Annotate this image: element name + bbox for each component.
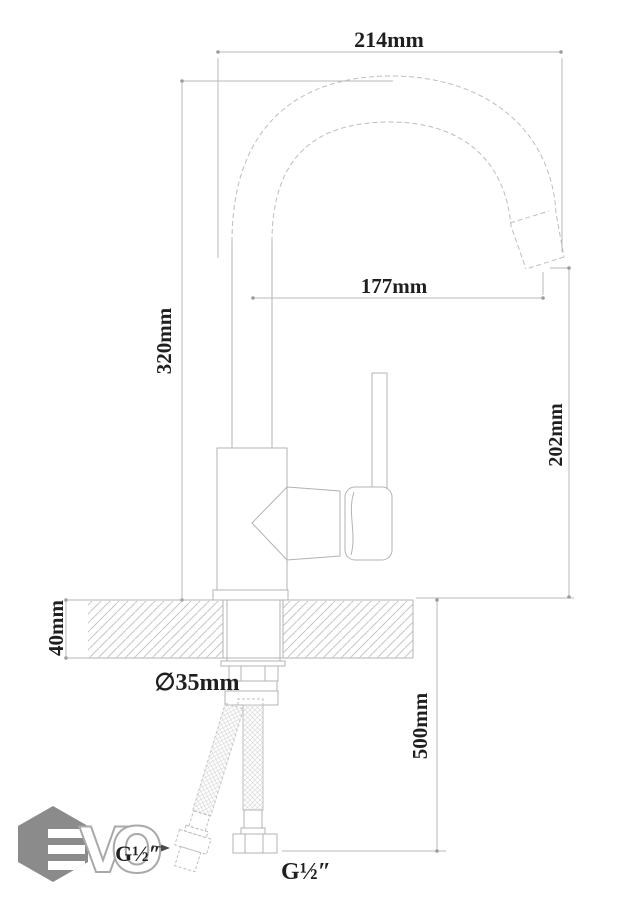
dimension-labels: 214mm 177mm 320mm 202mm 40mm 500mm ∅35mm… [44,27,567,885]
supply-hose-angled [169,701,250,873]
label-outlet-height: 202mm [545,403,567,467]
countertop-hatch-left [88,601,223,658]
label-counter-thickness: 40mm [44,600,68,656]
hose-male-hex [175,829,211,854]
threaded-shank [227,600,280,661]
logo-letter-e-hexagon [18,806,88,882]
label-hole-diameter: ∅35mm [155,670,240,696]
spout-aerator-joint [510,211,549,223]
drawing-svg: V O 214mm 177mm 320mm 202mm 40mm 500mm ∅… [0,0,635,900]
mounting-nut-facets [241,666,265,681]
riser-tube [232,242,272,448]
spout-outer-arc [232,76,564,257]
spout-inner-arc [272,122,526,269]
hose-male-thread [175,847,201,872]
handle-cone [252,487,340,560]
supply-hose-vertical [233,705,277,853]
label-hose-length: 500mm [408,692,432,759]
countertop [66,600,413,658]
label-thread-main: G½″ [281,859,331,885]
handle-lever [372,373,387,489]
hose-connector-nut [233,834,277,853]
countertop-hatch-right [283,601,413,658]
spout-tip-end [526,257,564,269]
label-total-height: 320mm [152,307,176,374]
label-spout-reach: 177mm [361,274,428,298]
faucet-body [217,448,287,590]
faucet-outline [213,76,564,600]
hose-block-detail [238,699,263,705]
base-flange [213,590,288,600]
mounting-hole-edges [223,600,283,658]
faucet-technical-drawing: V O 214mm 177mm 320mm 202mm 40mm 500mm ∅… [0,0,635,900]
label-thread-hose: G½″ [115,841,161,866]
dimension-lines [64,50,574,853]
washer [221,661,285,666]
label-spout-width: 214mm [354,27,424,52]
